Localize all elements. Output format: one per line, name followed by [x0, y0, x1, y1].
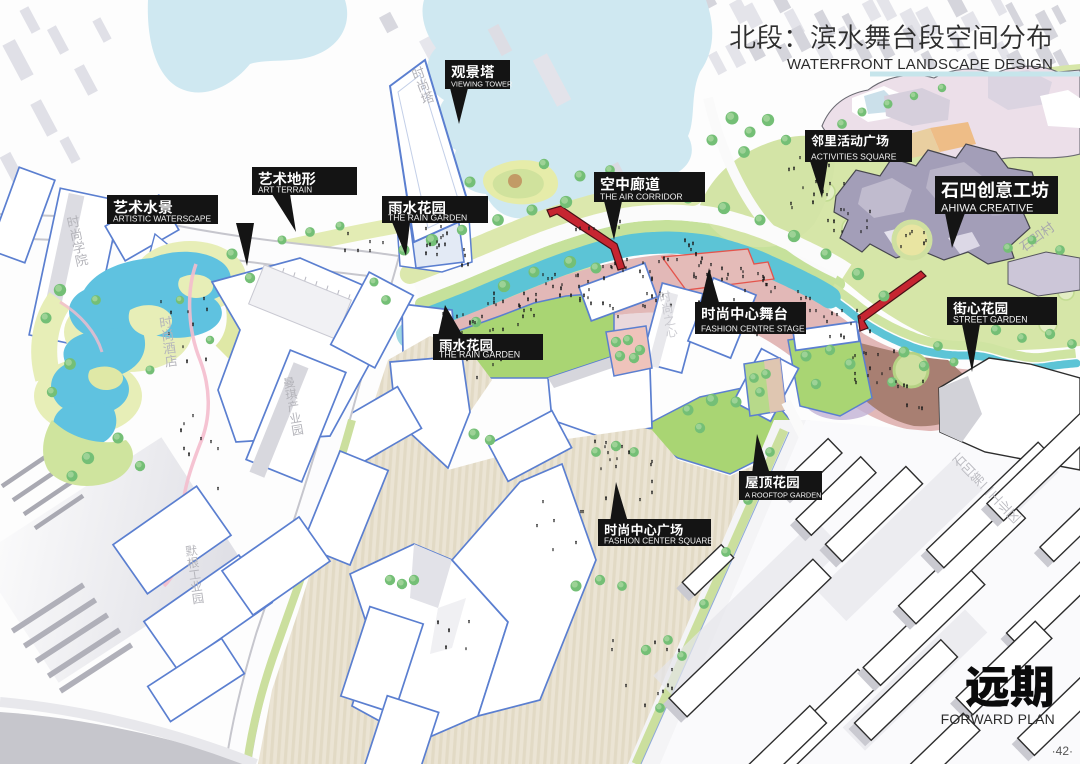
svg-text:WATERFRONT LANDSCAPE DESIGN: WATERFRONT LANDSCAPE DESIGN [787, 56, 1053, 73]
svg-text:·42·: ·42· [1052, 744, 1073, 758]
svg-text:THE RAIN GARDEN: THE RAIN GARDEN [388, 213, 467, 223]
svg-text:AHIWA CREATIVE: AHIWA CREATIVE [941, 203, 1033, 215]
svg-text:STREET GARDEN: STREET GARDEN [953, 315, 1028, 325]
svg-text:THE AIR CORRIDOR: THE AIR CORRIDOR [600, 192, 683, 202]
svg-text:VIEWING TOWER: VIEWING TOWER [451, 80, 512, 89]
svg-text:FASHION CENTER SQUARE: FASHION CENTER SQUARE [604, 537, 713, 546]
svg-text:ART TERRAIN: ART TERRAIN [258, 186, 312, 195]
svg-text:ACTIVITIES SQUARE: ACTIVITIES SQUARE [811, 152, 897, 162]
svg-text:A ROOFTOP GARDEN: A ROOFTOP GARDEN [745, 491, 822, 500]
svg-text:THE RAIN GARDEN: THE RAIN GARDEN [439, 350, 520, 360]
svg-text:FASHION CENTRE STAGE: FASHION CENTRE STAGE [701, 324, 805, 334]
svg-text:FORWARD PLAN: FORWARD PLAN [941, 711, 1055, 727]
svg-text:ARTISTIC WATERSCAPE: ARTISTIC WATERSCAPE [113, 214, 211, 224]
